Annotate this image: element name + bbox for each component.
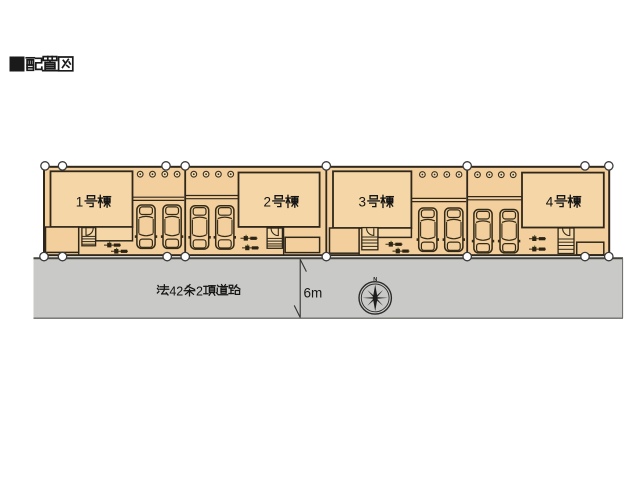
svg-text:3: 3 [358,195,366,210]
svg-text:2: 2 [263,195,271,210]
svg-text:2: 2 [196,284,203,298]
svg-text:N: N [373,277,377,283]
svg-text:42: 42 [169,284,183,298]
svg-text:6m: 6m [304,285,323,300]
svg-text:4: 4 [546,195,554,210]
svg-text:1: 1 [76,195,84,210]
